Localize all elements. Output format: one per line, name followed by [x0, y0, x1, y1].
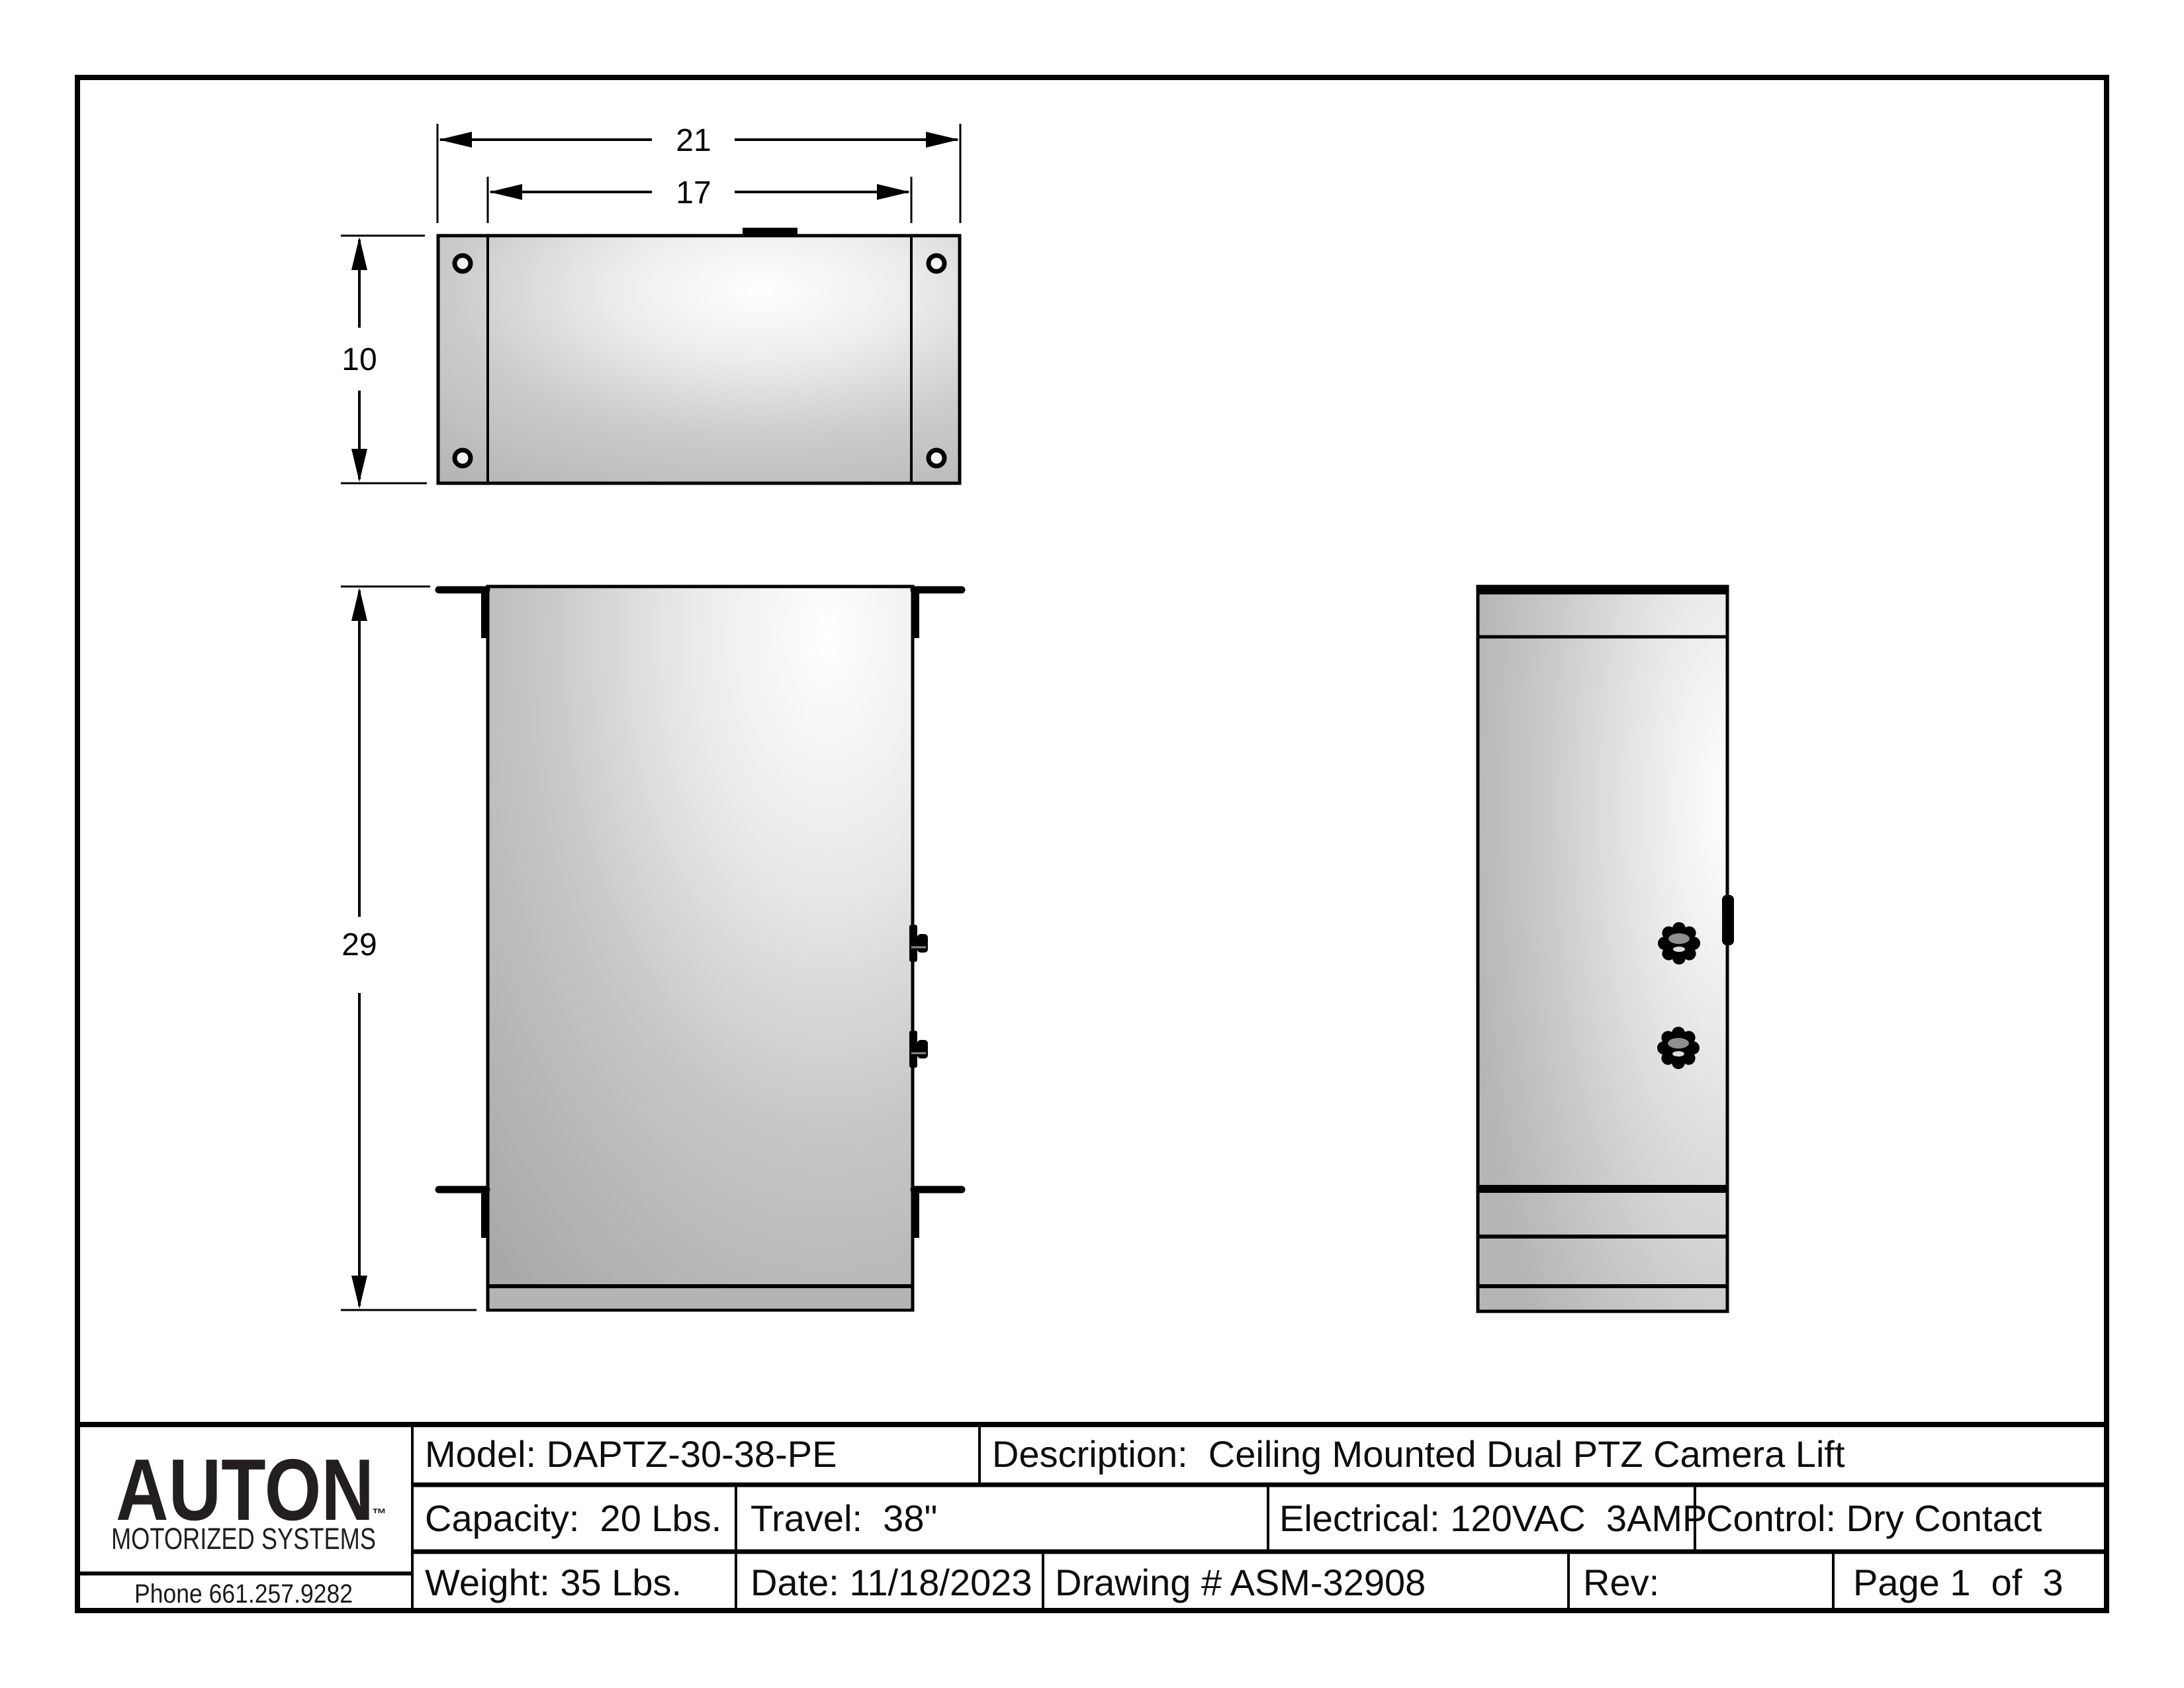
flange-strip-stub [481, 1192, 488, 1238]
arrowhead-down-icon [351, 1276, 367, 1309]
knob-profile-upper [909, 925, 928, 962]
brand-tagline: MOTORIZED SYSTEMS [111, 1522, 376, 1556]
front-view-body [488, 586, 913, 1310]
phone-number: Phone 661.257.9282 [134, 1579, 353, 1609]
drawing-sheet: 21 17 10 [0, 0, 2184, 1688]
travel-cell: Travel: 38" [751, 1497, 937, 1539]
capacity-cell: Capacity: 20 Lbs. [425, 1497, 721, 1539]
arrowhead-left-icon [439, 132, 472, 148]
date-cell: Date: 11/18/2023 [751, 1562, 1032, 1603]
mounting-hole [455, 256, 471, 271]
knurled-knob-lower [1657, 1027, 1700, 1069]
trademark-symbol: ™ [372, 1505, 387, 1522]
top-view-body [438, 236, 960, 483]
arrowhead-right-icon [926, 132, 959, 148]
latch-tab [1722, 895, 1734, 945]
dimension-value: 29 [341, 927, 377, 962]
knob-profile-lower [909, 1031, 928, 1068]
electrical-cell: Electrical: 120VAC 3AMP [1279, 1497, 1707, 1539]
knob-stem [917, 934, 928, 953]
knob-stem [917, 1040, 928, 1058]
page-cell: Page 1 of 3 [1853, 1562, 2064, 1603]
rev-cell: Rev: [1583, 1562, 1659, 1603]
bottom-closure-panel [490, 1289, 911, 1309]
flange-strip-stub [913, 1192, 919, 1238]
arrowhead-down-icon [351, 449, 367, 482]
arrowhead-up-icon [351, 588, 367, 621]
flange-strip-stub [913, 588, 919, 638]
arrowhead-right-icon [877, 184, 910, 200]
knurled-knob-upper [1658, 922, 1700, 964]
dimension-body-width: 17 [488, 175, 911, 223]
arrowhead-left-icon [489, 184, 522, 200]
mounting-hole [929, 256, 944, 271]
weight-cell: Weight: 35 Lbs. [425, 1562, 682, 1603]
flange-strip-stub [481, 588, 488, 638]
dimension-height: 29 [341, 586, 477, 1310]
arrowhead-up-icon [351, 237, 367, 270]
sheet-border [77, 77, 2107, 1611]
dimension-value: 21 [676, 123, 711, 158]
knob-base [909, 1031, 917, 1068]
description-cell: Description: Ceiling Mounted Dual PTZ Ca… [992, 1433, 1845, 1475]
mounting-hole [929, 450, 944, 466]
side-view [1477, 586, 1734, 1311]
model-cell: Model: DAPTZ-30-38-PE [425, 1433, 837, 1475]
control-cell: Control: Dry Contact [1706, 1497, 2042, 1539]
mounting-hole [455, 450, 471, 466]
logo: AUTON ™ MOTORIZED SYSTEMS Phone 661.257.… [111, 1441, 387, 1609]
knob-base [909, 925, 917, 962]
drawing-number-cell: Drawing # ASM-32908 [1055, 1562, 1426, 1603]
title-block: AUTON ™ MOTORIZED SYSTEMS Phone 661.257.… [77, 1425, 2107, 1611]
dimension-depth: 10 [341, 236, 427, 483]
top-view: 21 17 10 [341, 123, 960, 483]
front-view: 29 [341, 586, 962, 1310]
dimension-value: 10 [341, 342, 377, 377]
dimension-value: 17 [676, 175, 711, 211]
